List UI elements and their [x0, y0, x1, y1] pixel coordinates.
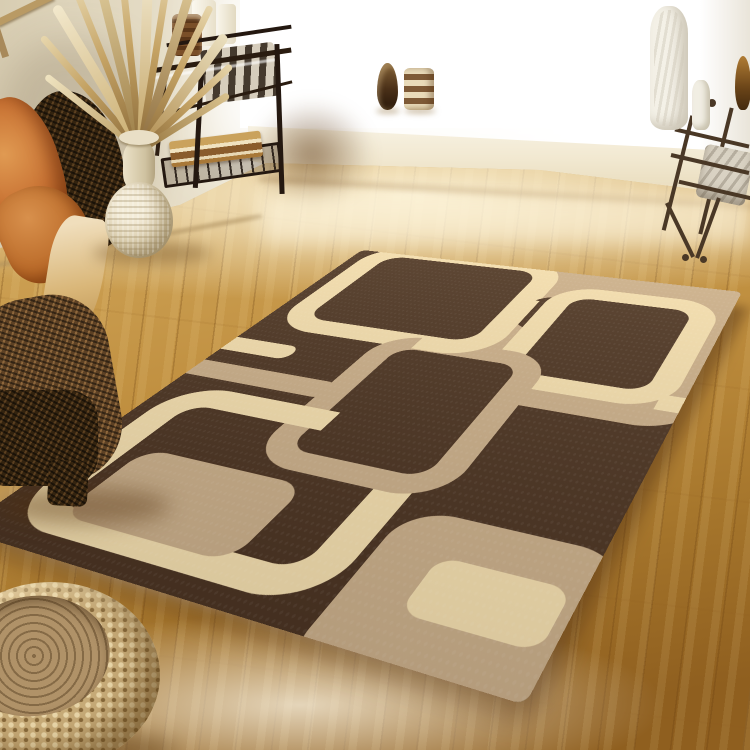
striped-candle: [404, 68, 434, 110]
rack-foot-2: [700, 256, 707, 263]
small-white-bottle: [692, 80, 710, 130]
amber-vase: [735, 56, 750, 110]
tall-white-vase: [650, 6, 688, 130]
vase-shadow-2: [404, 108, 436, 114]
living-room-photo: [0, 0, 750, 750]
vase-body: [105, 182, 173, 258]
rug-cream-band-left: [220, 337, 300, 360]
woven-round-pouf: [0, 582, 160, 750]
woven-gourd-vase-group: [93, 0, 223, 266]
rack-foot: [682, 254, 689, 261]
rack-leg: [665, 202, 695, 258]
vase-lip: [119, 130, 159, 145]
chair-leg: [47, 459, 89, 507]
vase-shadow: [376, 108, 400, 114]
